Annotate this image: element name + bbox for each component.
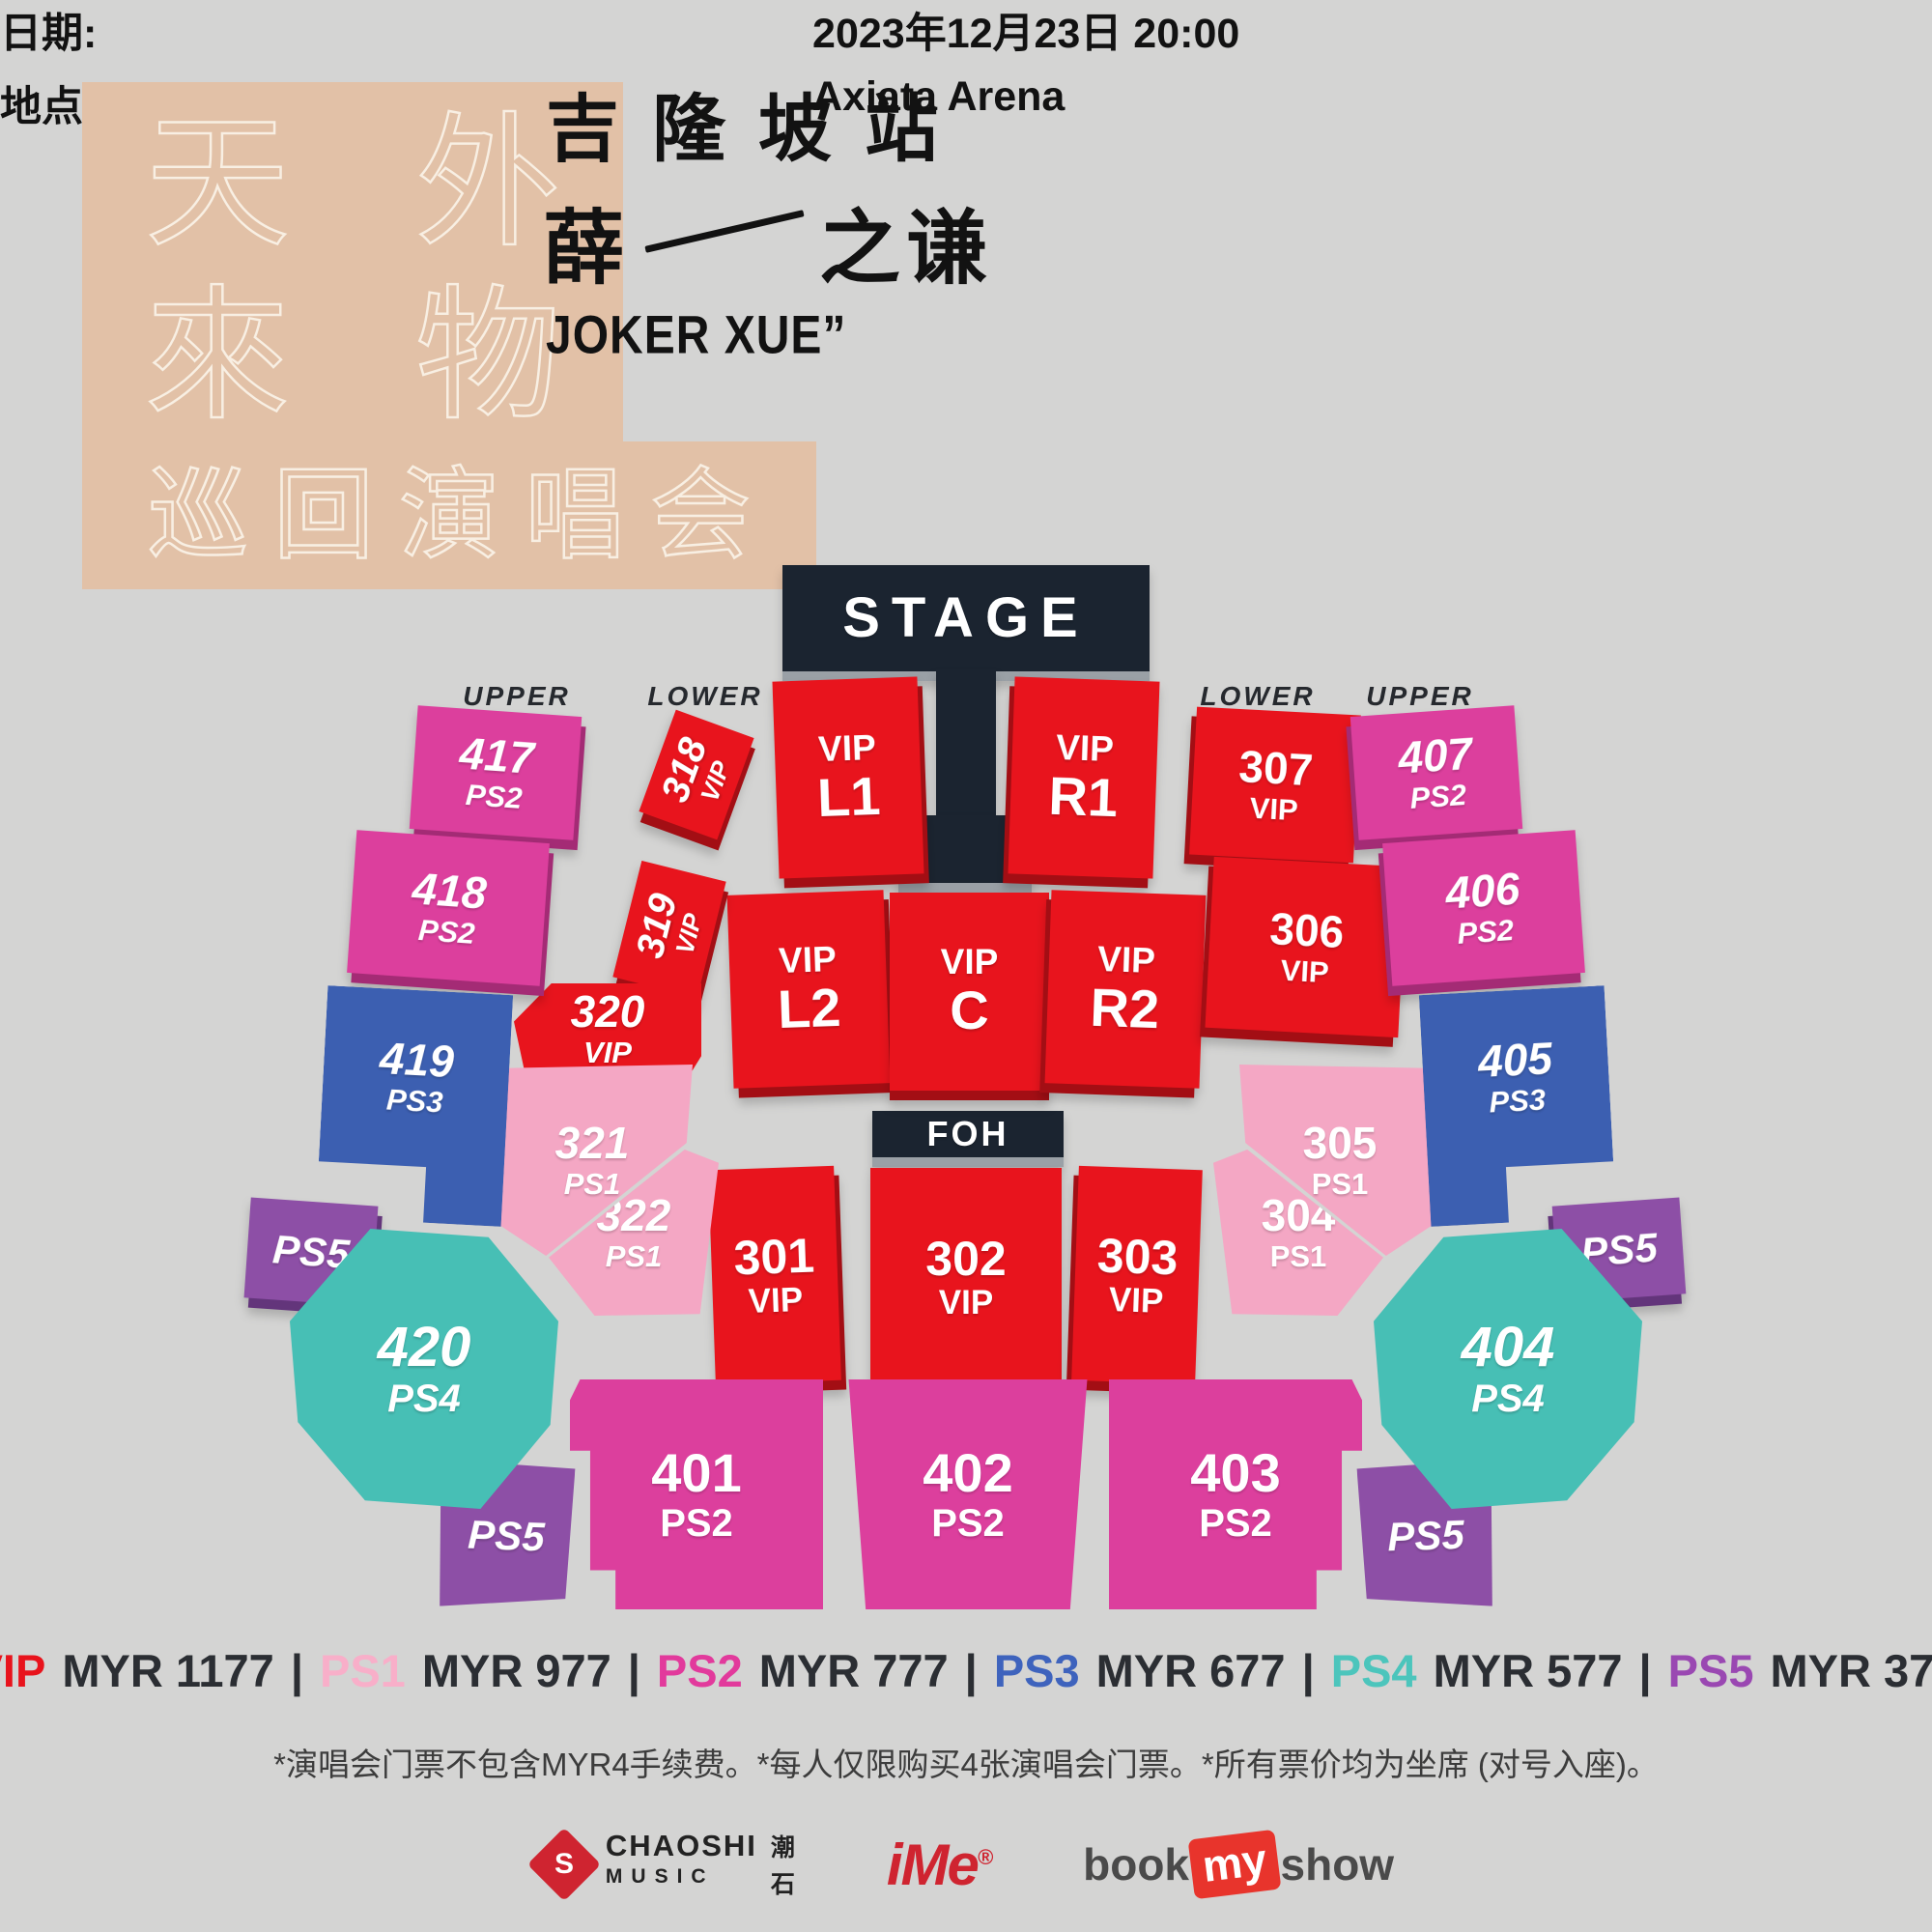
- section-406: 406PS2: [1382, 830, 1585, 986]
- artist-name: 薛 之谦: [543, 184, 993, 300]
- legend-separator: |: [291, 1644, 303, 1697]
- artist-english-name: JOKER XUE”: [546, 305, 846, 366]
- section-407: 407PS2: [1350, 705, 1523, 840]
- chaoshi-cn-2: 石: [771, 1865, 795, 1900]
- section-306: 306VIP: [1206, 857, 1407, 1037]
- legend-separator: |: [628, 1644, 640, 1697]
- section-402: 402PS2: [846, 1379, 1090, 1609]
- section-401: 401PS2: [570, 1379, 823, 1609]
- artist-slash: [644, 210, 804, 253]
- logo-char: 天: [145, 110, 290, 255]
- legend-price: MYR 677: [1096, 1644, 1286, 1697]
- foh-booth: FOH: [872, 1111, 1064, 1157]
- legend-key: PS1: [320, 1644, 406, 1697]
- legend-separator: |: [965, 1644, 978, 1697]
- logo-char: 來: [145, 283, 290, 428]
- section-403: 403PS2: [1109, 1379, 1362, 1609]
- chaoshi-diamond-icon: S: [527, 1828, 601, 1901]
- legend-separator: |: [1302, 1644, 1315, 1697]
- legend-key: VIP: [0, 1644, 45, 1697]
- section-318: 318VIP: [639, 710, 753, 840]
- section-405: 405PS3: [1419, 985, 1616, 1227]
- logo-char: 物: [415, 283, 560, 428]
- stage: STAGE: [782, 565, 1150, 671]
- section-319: 319VIP: [612, 861, 725, 998]
- foh-label: FOH: [927, 1116, 1009, 1153]
- logo-subtitle-text: 巡回演唱会: [148, 466, 776, 566]
- ticket-disclaimer: *演唱会门票不包含MYR4手续费。*每人仅限购买4张演唱会门票。*所有票价均为坐…: [0, 1739, 1932, 1785]
- stage-runway: [936, 669, 996, 819]
- section-307: 307VIP: [1189, 707, 1361, 864]
- tour-logo-subtitle: 巡回演唱会: [82, 441, 816, 589]
- stage-label: STAGE: [842, 588, 1090, 649]
- artist-name-left: 薛: [543, 184, 630, 300]
- section-417: 417PS2: [410, 705, 582, 840]
- station-title: 吉隆坡站: [546, 70, 971, 176]
- legend-price: MYR 777: [759, 1644, 949, 1697]
- venue-value: Axiata Arena: [812, 73, 1932, 133]
- artist-name-right: 之谦: [819, 184, 993, 300]
- legend-price: MYR 377: [1771, 1644, 1932, 1697]
- section-vip-r2: VIPR2: [1045, 890, 1207, 1088]
- bookmyshow-my-badge: my: [1188, 1830, 1282, 1900]
- section-vip-c: VIPC: [890, 893, 1049, 1091]
- legend-key: PS3: [994, 1644, 1080, 1697]
- section-vip-l2: VIPL2: [727, 890, 891, 1089]
- chaoshi-music: MUSIC: [606, 1865, 757, 1900]
- registered-mark: ®: [978, 1845, 991, 1869]
- legend-price: MYR 577: [1434, 1644, 1623, 1697]
- legend-price: MYR 1177: [62, 1644, 273, 1697]
- chaoshi-name: CHAOSHI: [606, 1829, 757, 1863]
- ime-logo: iMe®: [887, 1832, 991, 1898]
- section-303: 303VIP: [1071, 1166, 1203, 1384]
- logo-char: 外: [415, 110, 560, 255]
- section-301: 301VIP: [708, 1166, 841, 1384]
- legend-key: PS2: [657, 1644, 743, 1697]
- section-320: 320VIP: [514, 983, 701, 1074]
- chaoshi-music-logo: S CHAOSHI 潮 MUSIC 石: [538, 1829, 795, 1900]
- tour-logo: 天 外 來 物: [82, 82, 623, 441]
- section-vip-l1: VIPL1: [772, 676, 923, 878]
- bookmyshow-logo: book my show: [1083, 1834, 1394, 1894]
- section-418: 418PS2: [347, 830, 550, 986]
- sponsor-logos: S CHAOSHI 潮 MUSIC 石 iMe® book my show: [0, 1829, 1932, 1900]
- legend-price: MYR 977: [422, 1644, 611, 1697]
- legend-key: PS5: [1668, 1644, 1754, 1697]
- chaoshi-cn-1: 潮: [771, 1829, 795, 1863]
- section-302: 302VIP: [870, 1168, 1062, 1386]
- section-vip-r1: VIPR1: [1008, 676, 1159, 878]
- date-label: 日期:: [0, 0, 789, 60]
- label-lower-left: LOWER: [618, 681, 792, 712]
- legend-separator: |: [1639, 1644, 1652, 1697]
- legend-key: PS4: [1331, 1644, 1417, 1697]
- date-value: 2023年12月23日 20:00: [812, 0, 1932, 60]
- section-419: 419PS3: [316, 985, 513, 1227]
- price-legend: VIP MYR 1177 | PS1 MYR 977 | PS2 MYR 777…: [0, 1644, 1932, 1697]
